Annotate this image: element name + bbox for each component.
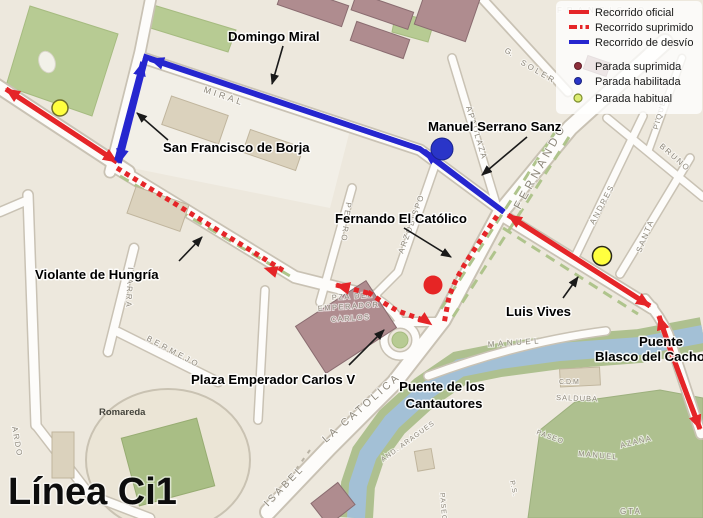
legend-label-parada-suprimida: Parada suprimida	[595, 61, 682, 73]
street-label: C.D.M	[559, 379, 579, 386]
legend-stop-suprimida-icon	[575, 63, 582, 70]
callout-puente-blasco-del-cacho: Blasco del Cacho	[595, 349, 703, 364]
callout-manuel-serrano-sanz: Manuel Serrano Sanz	[428, 119, 562, 134]
building	[414, 449, 434, 472]
legend-label-parada-habitual: Parada habitual	[595, 93, 672, 105]
line-title: Línea Ci1	[8, 471, 177, 513]
callout-puente-cantautores: Cantautores	[406, 396, 483, 411]
legend-label-official: Recorrido oficial	[595, 7, 674, 19]
callout-domingo-miral: Domingo Miral	[228, 29, 320, 44]
roundabout-green	[392, 332, 408, 348]
legend-label-suppressed: Recorrido suprimido	[595, 22, 693, 34]
legend-label-parada-habilitada: Parada habilitada	[595, 76, 682, 88]
callout-fernando-el-catolico: Fernando El Católico	[335, 211, 467, 226]
stadium-label: Romareda	[99, 407, 146, 418]
legend-panel: Recorrido oficial Recorrido suprimido Re…	[556, 1, 702, 114]
stop-habilitada-marker	[431, 138, 453, 160]
legend-label-detour: Recorrido de desvío	[595, 37, 693, 49]
callout-puente-blasco-del-cacho: Puente	[639, 334, 683, 349]
callout-san-francisco-de-borja: San Francisco de Borja	[163, 140, 310, 155]
stop-habitual-marker	[52, 100, 68, 116]
map-canvas: MIRAL G. SOLER APAOLAZA FERNANDO PEDRO A…	[0, 0, 703, 518]
stop-habitual-marker	[593, 247, 612, 266]
street-label: SALDUBA	[556, 393, 598, 403]
legend-stop-habilitada-icon	[575, 78, 582, 85]
street-label: GTA	[620, 507, 642, 516]
callout-plaza-emperador-carlos: Plaza Emperador Carlos V	[191, 372, 355, 387]
callout-puente-cantautores: Puente de los	[399, 379, 485, 394]
stop-suprimida-marker	[424, 276, 443, 295]
callout-violante-de-hungria: Violante de Hungría	[35, 267, 159, 282]
callout-luis-vives: Luis Vives	[506, 304, 571, 319]
legend-stop-habitual-icon	[574, 94, 582, 102]
map-screenshot: MIRAL G. SOLER APAOLAZA FERNANDO PEDRO A…	[0, 0, 703, 518]
